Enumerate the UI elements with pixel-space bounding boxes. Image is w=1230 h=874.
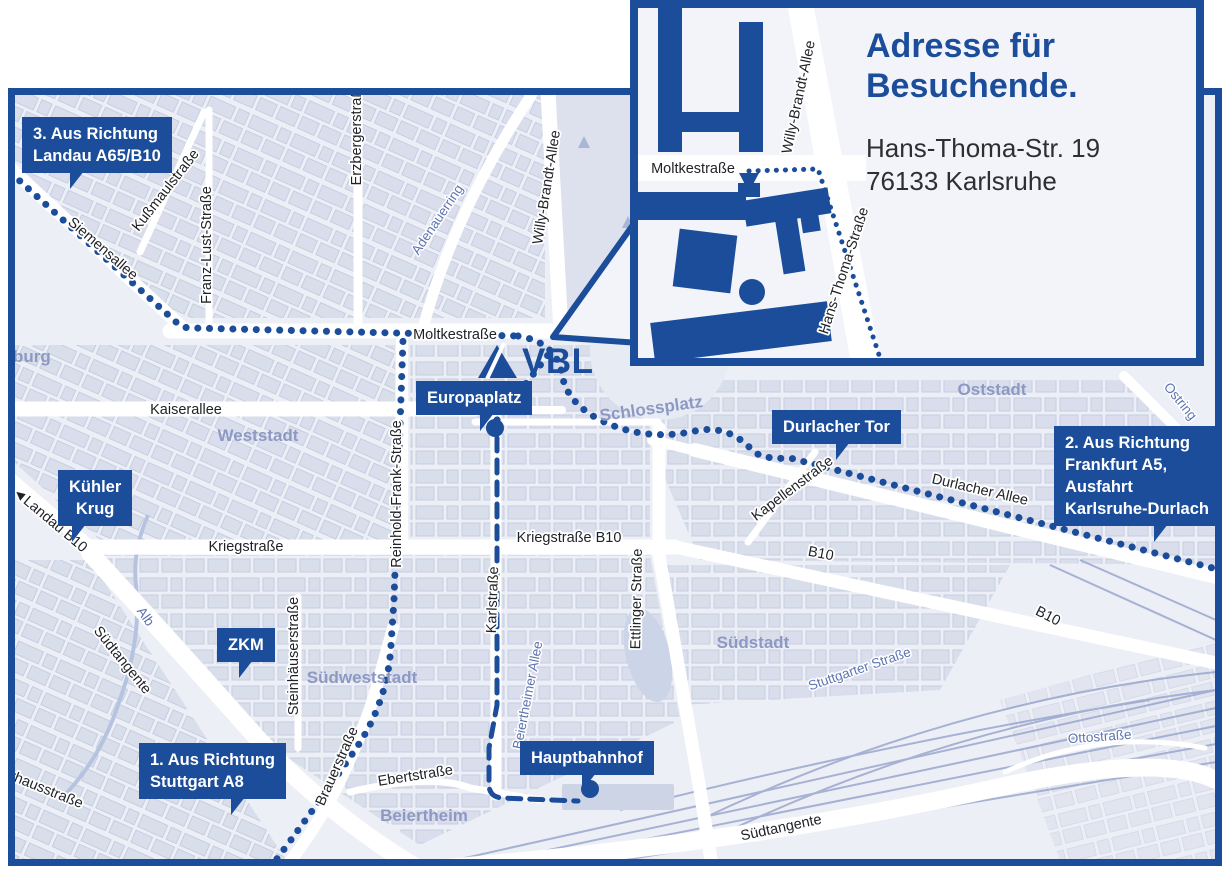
callout-europaplatz-pointer-icon (480, 413, 494, 431)
district-label-suedweststadt: Südweststadt (307, 668, 418, 687)
street-label-moltkestrasse: Moltkestraße (413, 327, 497, 343)
inset-address-line2: 76133 Karlsruhe (866, 165, 1186, 198)
inset-address: Hans-Thoma-Str. 19 76133 Karlsruhe (866, 132, 1186, 198)
callout-hauptbahnhof-pointer-icon (582, 773, 596, 791)
callout-kuehler-line2: Krug (69, 498, 121, 520)
callout-stuttgart-line1: 1. Aus Richtung (150, 749, 275, 771)
callout-frankfurt-line4: Karlsruhe-Durlach (1065, 498, 1209, 520)
callout-hauptbahnhof-line1: Hauptbahnhof (531, 747, 643, 769)
callout-kuehler-line1: Kühler (69, 476, 121, 498)
callout-frankfurt-line1: 2. Aus Richtung (1065, 432, 1209, 454)
street-label-kriegstrasse-b10: Kriegstraße B10 (517, 530, 622, 546)
callout-hauptbahnhof: Hauptbahnhof (520, 741, 654, 775)
vbl-pyramid-icon (477, 343, 519, 379)
inset-address-line1: Hans-Thoma-Str. 19 (866, 132, 1186, 165)
district-label-oststadt: Oststadt (958, 380, 1027, 399)
street-label-karlstrasse: Karlstraße (484, 566, 502, 633)
street-label-kaiserallee: Kaiserallee (150, 402, 222, 418)
vbl-logo: VBL (477, 343, 594, 379)
callout-stuttgart-line2: Stuttgart A8 (150, 771, 275, 793)
inset-title: Adresse für Besuchende. (866, 26, 1186, 106)
district-label-suedstadt: Südstadt (717, 633, 790, 652)
callout-landau-pointer-icon (70, 171, 84, 189)
callout-europaplatz-line1: Europaplatz (427, 387, 521, 409)
street-label-franz-lust-strasse: Franz-Lust-Straße (199, 186, 215, 304)
callout-stuttgart: 1. Aus Richtung Stuttgart A8 (139, 743, 286, 799)
callout-kuehler-krug: Kühler Krug (58, 470, 132, 526)
hauptbahnhof-building (562, 784, 674, 810)
district-label-muehlburg: Mühlburg (0, 347, 51, 366)
callout-stuttgart-pointer-icon (231, 797, 245, 815)
district-label-beiertheim: Beiertheim (380, 806, 468, 825)
street-label-kriegstrasse: Kriegstraße (209, 539, 284, 555)
street-label-reinhold-frank-strasse: Reinhold-Frank-Straße (389, 420, 405, 567)
street-label-steinhaeuserstrasse: Steinhäuserstraße (286, 597, 302, 715)
callout-landau: 3. Aus Richtung Landau A65/B10 (22, 117, 172, 173)
callout-durlacher-tor: Durlacher Tor (772, 410, 901, 444)
callout-frankfurt-line3: Ausfahrt (1065, 476, 1209, 498)
vbl-logo-text: VBL (522, 344, 594, 379)
callout-zkm-pointer-icon (239, 660, 253, 678)
callout-frankfurt-line2: Frankfurt A5, (1065, 454, 1209, 476)
callout-kuehler-pointer-icon (72, 524, 86, 542)
callout-landau-line1: 3. Aus Richtung (33, 123, 161, 145)
map-figure: Siemensallee Kußmaulstraße Franz-Lust-St… (0, 0, 1230, 874)
callout-frankfurt: 2. Aus Richtung Frankfurt A5, Ausfahrt K… (1054, 426, 1220, 526)
inset-title-line1: Adresse für (866, 26, 1186, 66)
callout-zkm-line1: ZKM (228, 634, 264, 656)
callout-frankfurt-pointer-icon (1154, 524, 1168, 542)
inset-street-label-moltkestrasse: Moltkestraße (651, 161, 735, 177)
district-label-weststadt: Weststadt (218, 426, 299, 445)
callout-zkm: ZKM (217, 628, 275, 662)
inset-address-block: Adresse für Besuchende. Hans-Thoma-Str. … (866, 26, 1186, 198)
street-label-erzbergerstrasse: Erzbergerstraße (349, 81, 365, 186)
callout-landau-line2: Landau A65/B10 (33, 145, 161, 167)
callout-durlacher-tor-line1: Durlacher Tor (783, 416, 890, 438)
callout-europaplatz: Europaplatz (416, 381, 532, 415)
inset-title-line2: Besuchende. (866, 66, 1186, 106)
street-label-ettlinger-strasse: Ettlinger Straße (628, 548, 646, 649)
callout-durlacher-tor-pointer-icon (836, 442, 850, 460)
